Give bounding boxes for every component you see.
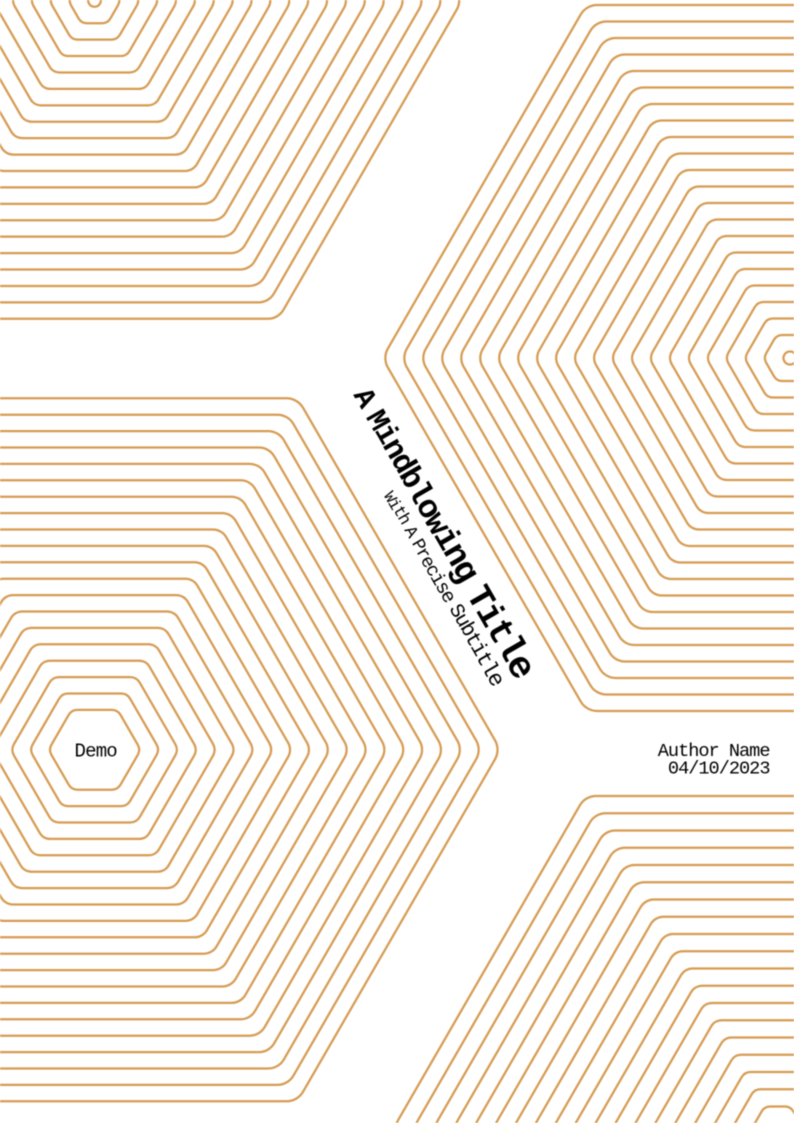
svg-text:04/10/2023: 04/10/2023 — [668, 759, 770, 780]
svg-text:Demo: Demo — [74, 741, 117, 763]
